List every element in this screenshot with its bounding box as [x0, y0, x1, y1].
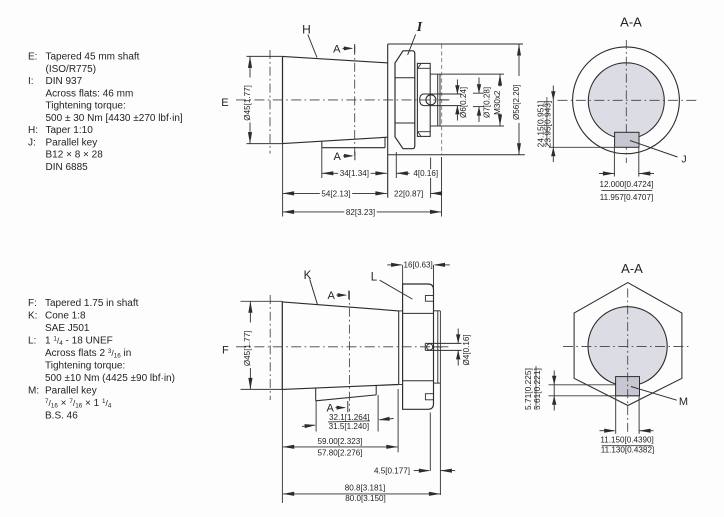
svg-text:Tapered 1.75 in shaft: Tapered 1.75 in shaft [45, 298, 139, 309]
svg-text:DIN 937: DIN 937 [46, 76, 83, 87]
svg-text:A-A: A-A [620, 14, 642, 29]
svg-text:M30x2: M30x2 [493, 90, 502, 115]
svg-text:Tightening torque:: Tightening torque: [45, 361, 125, 372]
svg-text:L: L [371, 271, 378, 283]
svg-text:57.80[2.276]: 57.80[2.276] [317, 448, 362, 457]
svg-text:11.150[0.4390]: 11.150[0.4390] [600, 435, 653, 444]
svg-text:500 ±10 Nm (4425 ±90 lbf·in): 500 ±10 Nm (4425 ±90 lbf·in) [45, 373, 175, 384]
svg-text:34[1.34]: 34[1.34] [340, 169, 369, 178]
svg-text:Tapered 45 mm shaft: Tapered 45 mm shaft [46, 52, 140, 63]
svg-text:31.5[1.240]: 31.5[1.240] [329, 422, 370, 431]
svg-text:500 ± 30 Nm [4430 ±270 lbf·in]: 500 ± 30 Nm [4430 ±270 lbf·in] [46, 113, 183, 124]
svg-text:4.5[0.177]: 4.5[0.177] [374, 466, 410, 475]
svg-text:A-A: A-A [621, 261, 643, 276]
svg-text:11.957[0.4707]: 11.957[0.4707] [600, 193, 653, 202]
svg-text:A: A [328, 290, 336, 302]
svg-text:12.000[0.4724]: 12.000[0.4724] [599, 180, 653, 189]
svg-text:Ø6[0.24]: Ø6[0.24] [459, 87, 468, 118]
svg-text:J: J [681, 154, 686, 166]
svg-text:Ø45[1.77]: Ø45[1.77] [243, 85, 252, 121]
svg-text:Tightening torque:: Tightening torque: [46, 101, 126, 112]
svg-text:Parallel key: Parallel key [46, 138, 98, 149]
svg-text:B12 × 8 × 28: B12 × 8 × 28 [46, 150, 104, 161]
svg-text:M:: M: [28, 386, 39, 397]
svg-text:Ø7[0.28]: Ø7[0.28] [482, 87, 491, 118]
svg-text:Parallel key: Parallel key [45, 386, 97, 397]
svg-text:5.61[0.221]: 5.61[0.221] [532, 368, 542, 410]
svg-text:Taper 1:10: Taper 1:10 [46, 125, 94, 136]
svg-text:80.0[3.150]: 80.0[3.150] [345, 494, 386, 503]
svg-text:A: A [333, 44, 341, 56]
svg-text:82[3.23]: 82[3.23] [346, 208, 375, 217]
svg-text:I:: I: [28, 76, 34, 87]
svg-text:L:: L: [28, 336, 36, 347]
svg-text:J:: J: [28, 138, 36, 149]
svg-text:H: H [302, 23, 311, 37]
svg-text:23.95[0.943]: 23.95[0.943] [542, 101, 552, 148]
svg-text:Ø4[0.16]: Ø4[0.16] [462, 334, 471, 365]
svg-text:11.130[0.4382]: 11.130[0.4382] [601, 446, 654, 455]
svg-text:F:: F: [28, 298, 37, 309]
svg-text:DIN 6885: DIN 6885 [46, 162, 89, 173]
svg-text:K:: K: [28, 311, 37, 322]
svg-text:59.00[2.323]: 59.00[2.323] [317, 437, 362, 446]
svg-text:E:: E: [28, 52, 37, 63]
svg-text:Cone 1:8: Cone 1:8 [45, 311, 86, 322]
svg-text:80.8[3.181]: 80.8[3.181] [345, 484, 386, 493]
svg-text:16[0.63]: 16[0.63] [403, 261, 432, 270]
svg-text:B.S. 46: B.S. 46 [45, 411, 78, 422]
svg-text:54[2.13]: 54[2.13] [321, 189, 350, 198]
svg-text:Across flats: 46 mm: Across flats: 46 mm [46, 88, 134, 99]
svg-text:SAE J501: SAE J501 [45, 323, 90, 334]
svg-text:Ø45[1.77]: Ø45[1.77] [243, 331, 252, 367]
svg-text:(ISO/R775): (ISO/R775) [46, 64, 97, 75]
svg-text:M: M [679, 396, 688, 408]
svg-text:22[0.87]: 22[0.87] [394, 189, 423, 198]
svg-text:H:: H: [28, 125, 38, 136]
svg-text:E: E [221, 97, 228, 109]
svg-text:Ø56[2.20]: Ø56[2.20] [512, 84, 521, 120]
svg-text:F: F [222, 345, 229, 357]
svg-text:A: A [334, 151, 342, 163]
svg-text:4[0.16]: 4[0.16] [413, 169, 438, 178]
svg-text:I: I [416, 20, 423, 35]
